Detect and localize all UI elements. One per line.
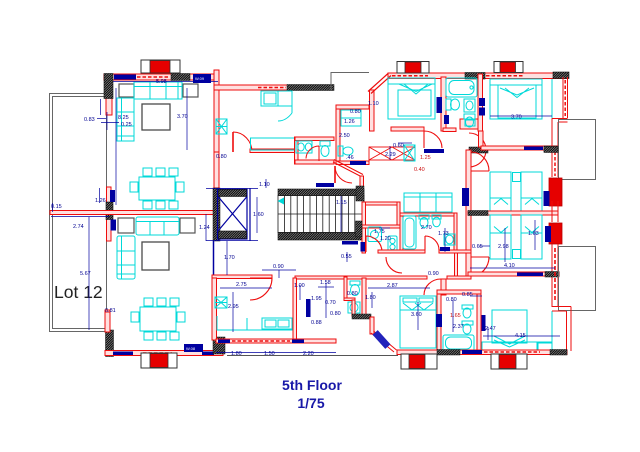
svg-text:1.60: 1.60: [253, 212, 264, 218]
svg-text:1.10: 1.10: [368, 101, 379, 107]
svg-text:1.15: 1.15: [336, 200, 347, 206]
svg-text:0.60: 0.60: [393, 143, 404, 149]
svg-text:2.95: 2.95: [228, 304, 239, 310]
svg-text:8.25: 8.25: [118, 115, 129, 121]
svg-text:1.70: 1.70: [224, 255, 235, 261]
svg-text:0.70: 0.70: [325, 300, 336, 306]
svg-text:3.70: 3.70: [177, 114, 188, 120]
svg-text:1.26: 1.26: [95, 198, 106, 204]
svg-text:2.87: 2.87: [387, 283, 398, 289]
svg-text:1.00: 1.00: [294, 283, 305, 289]
svg-text:0.81: 0.81: [105, 308, 116, 314]
svg-text:0.80: 0.80: [216, 154, 227, 160]
svg-text:.46: .46: [346, 155, 354, 161]
svg-text:0.80: 0.80: [330, 311, 341, 317]
svg-text:5.67: 5.67: [80, 271, 91, 277]
svg-text:2.47: 2.47: [485, 326, 496, 332]
svg-text:1.20: 1.20: [380, 236, 391, 242]
svg-text:2.20: 2.20: [303, 351, 314, 357]
svg-text:1/75: 1/75: [297, 395, 324, 411]
svg-text:0.88: 0.88: [311, 320, 322, 326]
svg-text:0.90: 0.90: [428, 271, 439, 277]
svg-text:0.85: 0.85: [462, 292, 473, 298]
svg-text:1.10: 1.10: [259, 182, 270, 188]
svg-text:2.74: 2.74: [73, 224, 84, 230]
svg-text:W.08: W.08: [186, 346, 196, 351]
svg-text:5th Floor: 5th Floor: [282, 377, 342, 393]
svg-text:0.80: 0.80: [446, 297, 457, 303]
svg-text:1.50: 1.50: [264, 351, 275, 357]
svg-text:1.65: 1.65: [450, 313, 461, 319]
svg-text:5.98: 5.98: [156, 79, 167, 85]
svg-text:0.83: 0.83: [84, 117, 95, 123]
svg-text:2.37: 2.37: [453, 324, 464, 330]
svg-text:1.80: 1.80: [365, 295, 376, 301]
svg-text:2.75: 2.75: [236, 282, 247, 288]
svg-text:0.65: 0.65: [472, 244, 483, 250]
svg-text:Lot 12: Lot 12: [54, 282, 103, 302]
svg-text:0.80: 0.80: [350, 109, 361, 115]
svg-text:1.75: 1.75: [374, 229, 385, 235]
svg-text:1.95: 1.95: [311, 296, 322, 302]
svg-text:1.58: 1.58: [320, 280, 331, 286]
svg-text:2.70: 2.70: [421, 225, 432, 231]
svg-text:1.25: 1.25: [420, 155, 431, 161]
svg-text:4.15: 4.15: [515, 333, 526, 339]
svg-text:0.80: 0.80: [347, 291, 358, 297]
svg-text:0.40: 0.40: [414, 167, 425, 173]
svg-text:2.29: 2.29: [385, 152, 396, 158]
svg-text:0.90: 0.90: [273, 264, 284, 270]
svg-text:1.63: 1.63: [528, 231, 539, 237]
svg-text:1.80: 1.80: [231, 351, 242, 357]
svg-text:0.15: 0.15: [51, 204, 62, 210]
svg-text:1.73: 1.73: [438, 231, 449, 237]
svg-text:W.09: W.09: [195, 76, 205, 81]
svg-text:3.70: 3.70: [511, 115, 522, 121]
svg-text:1.24: 1.24: [199, 225, 210, 231]
svg-text:3.60: 3.60: [411, 312, 422, 318]
svg-text:4.10: 4.10: [504, 263, 515, 269]
svg-text:2.98: 2.98: [498, 244, 509, 250]
svg-text:0.55: 0.55: [341, 254, 352, 260]
svg-text:0.25: 0.25: [121, 122, 132, 128]
svg-text:2.50: 2.50: [339, 133, 350, 139]
svg-text:1.26: 1.26: [344, 119, 355, 125]
